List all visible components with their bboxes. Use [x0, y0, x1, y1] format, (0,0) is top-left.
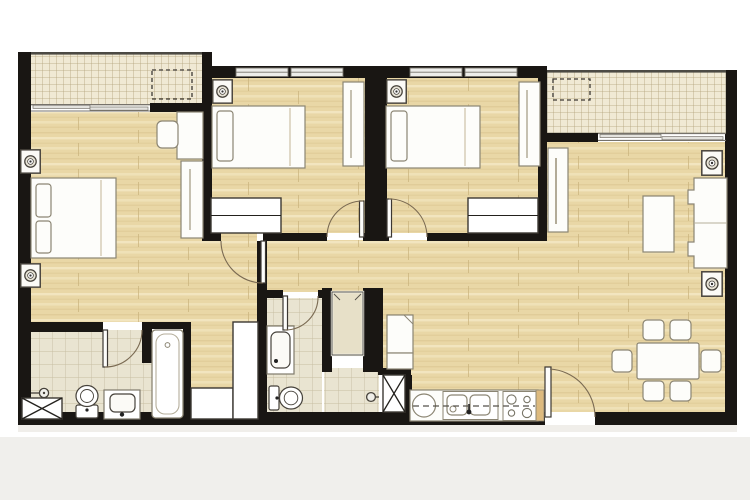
wall-left — [18, 52, 31, 425]
wash-basin-icon — [267, 326, 294, 374]
pillow — [391, 111, 407, 161]
wall-bottom-right — [595, 412, 737, 425]
wall-closet-b — [363, 288, 383, 372]
toilet-icon — [269, 386, 303, 410]
nightstand-lamp-icon — [387, 80, 406, 103]
dining-table — [637, 343, 699, 379]
hall-linen-closet — [332, 292, 363, 355]
wardrobe — [343, 82, 364, 166]
toilet-icon — [76, 386, 98, 419]
railing-right-balcony — [547, 70, 737, 73]
wall-bathroom2-top-a — [257, 290, 283, 298]
dining-chair — [670, 320, 691, 340]
railing-left-balcony — [20, 52, 204, 55]
wall-balcony-pier — [150, 103, 203, 112]
floor-plan — [0, 0, 750, 500]
bottom-band — [0, 437, 750, 500]
floor-balcony-left — [20, 54, 203, 105]
wall-corridor-c — [363, 233, 389, 241]
wall-corridor-b — [263, 233, 327, 241]
wash-basin-icon — [104, 390, 140, 419]
counter-endcap — [536, 390, 544, 421]
side-table-lamp-icon — [702, 151, 722, 175]
wall-bathroom1-top — [18, 322, 103, 332]
bathtub — [152, 330, 183, 418]
floor-plan-page — [0, 0, 750, 500]
service-shaft-icon — [22, 398, 62, 419]
wall-corridor-a — [203, 233, 221, 241]
nightstand-lamp-icon — [213, 80, 232, 103]
wall-right — [725, 133, 737, 425]
plan-shadow — [18, 425, 737, 432]
floor-corridor — [267, 240, 383, 292]
pillow — [36, 184, 51, 217]
desk-chair — [157, 121, 178, 148]
dining-chair — [701, 350, 721, 372]
floor-balcony-right — [547, 72, 726, 133]
double-sink — [443, 392, 498, 420]
pillow — [36, 221, 51, 253]
coffee-table — [643, 196, 674, 252]
nightstand-lamp-icon — [21, 150, 40, 173]
wall-corridor-d — [427, 233, 547, 241]
floor-storage-room — [324, 368, 379, 412]
wardrobe-rail-bottom — [191, 388, 233, 419]
dining-chair — [612, 350, 632, 372]
side-table-lamp-icon — [702, 272, 722, 296]
service-shaft-icon — [383, 375, 405, 412]
wall-between-bedrooms — [365, 66, 387, 241]
wall-tub-closet — [183, 322, 191, 413]
wall-right-balcony — [726, 70, 737, 136]
desk — [177, 112, 203, 159]
wardrobe-rail-side — [233, 322, 258, 419]
wardrobe-master — [181, 161, 203, 238]
nightstand-lamp-icon — [21, 264, 40, 287]
refrigerator — [387, 315, 413, 369]
tv-cabinet — [548, 148, 568, 232]
wall-right-balcony-pier — [545, 133, 598, 142]
dining-chair — [643, 381, 664, 401]
pillow — [217, 111, 233, 161]
wardrobe — [519, 82, 540, 166]
dining-chair — [643, 320, 664, 340]
dining-chair — [670, 381, 691, 401]
wall-closet-a — [322, 288, 332, 372]
wall-bathtub-lintel — [142, 322, 183, 329]
